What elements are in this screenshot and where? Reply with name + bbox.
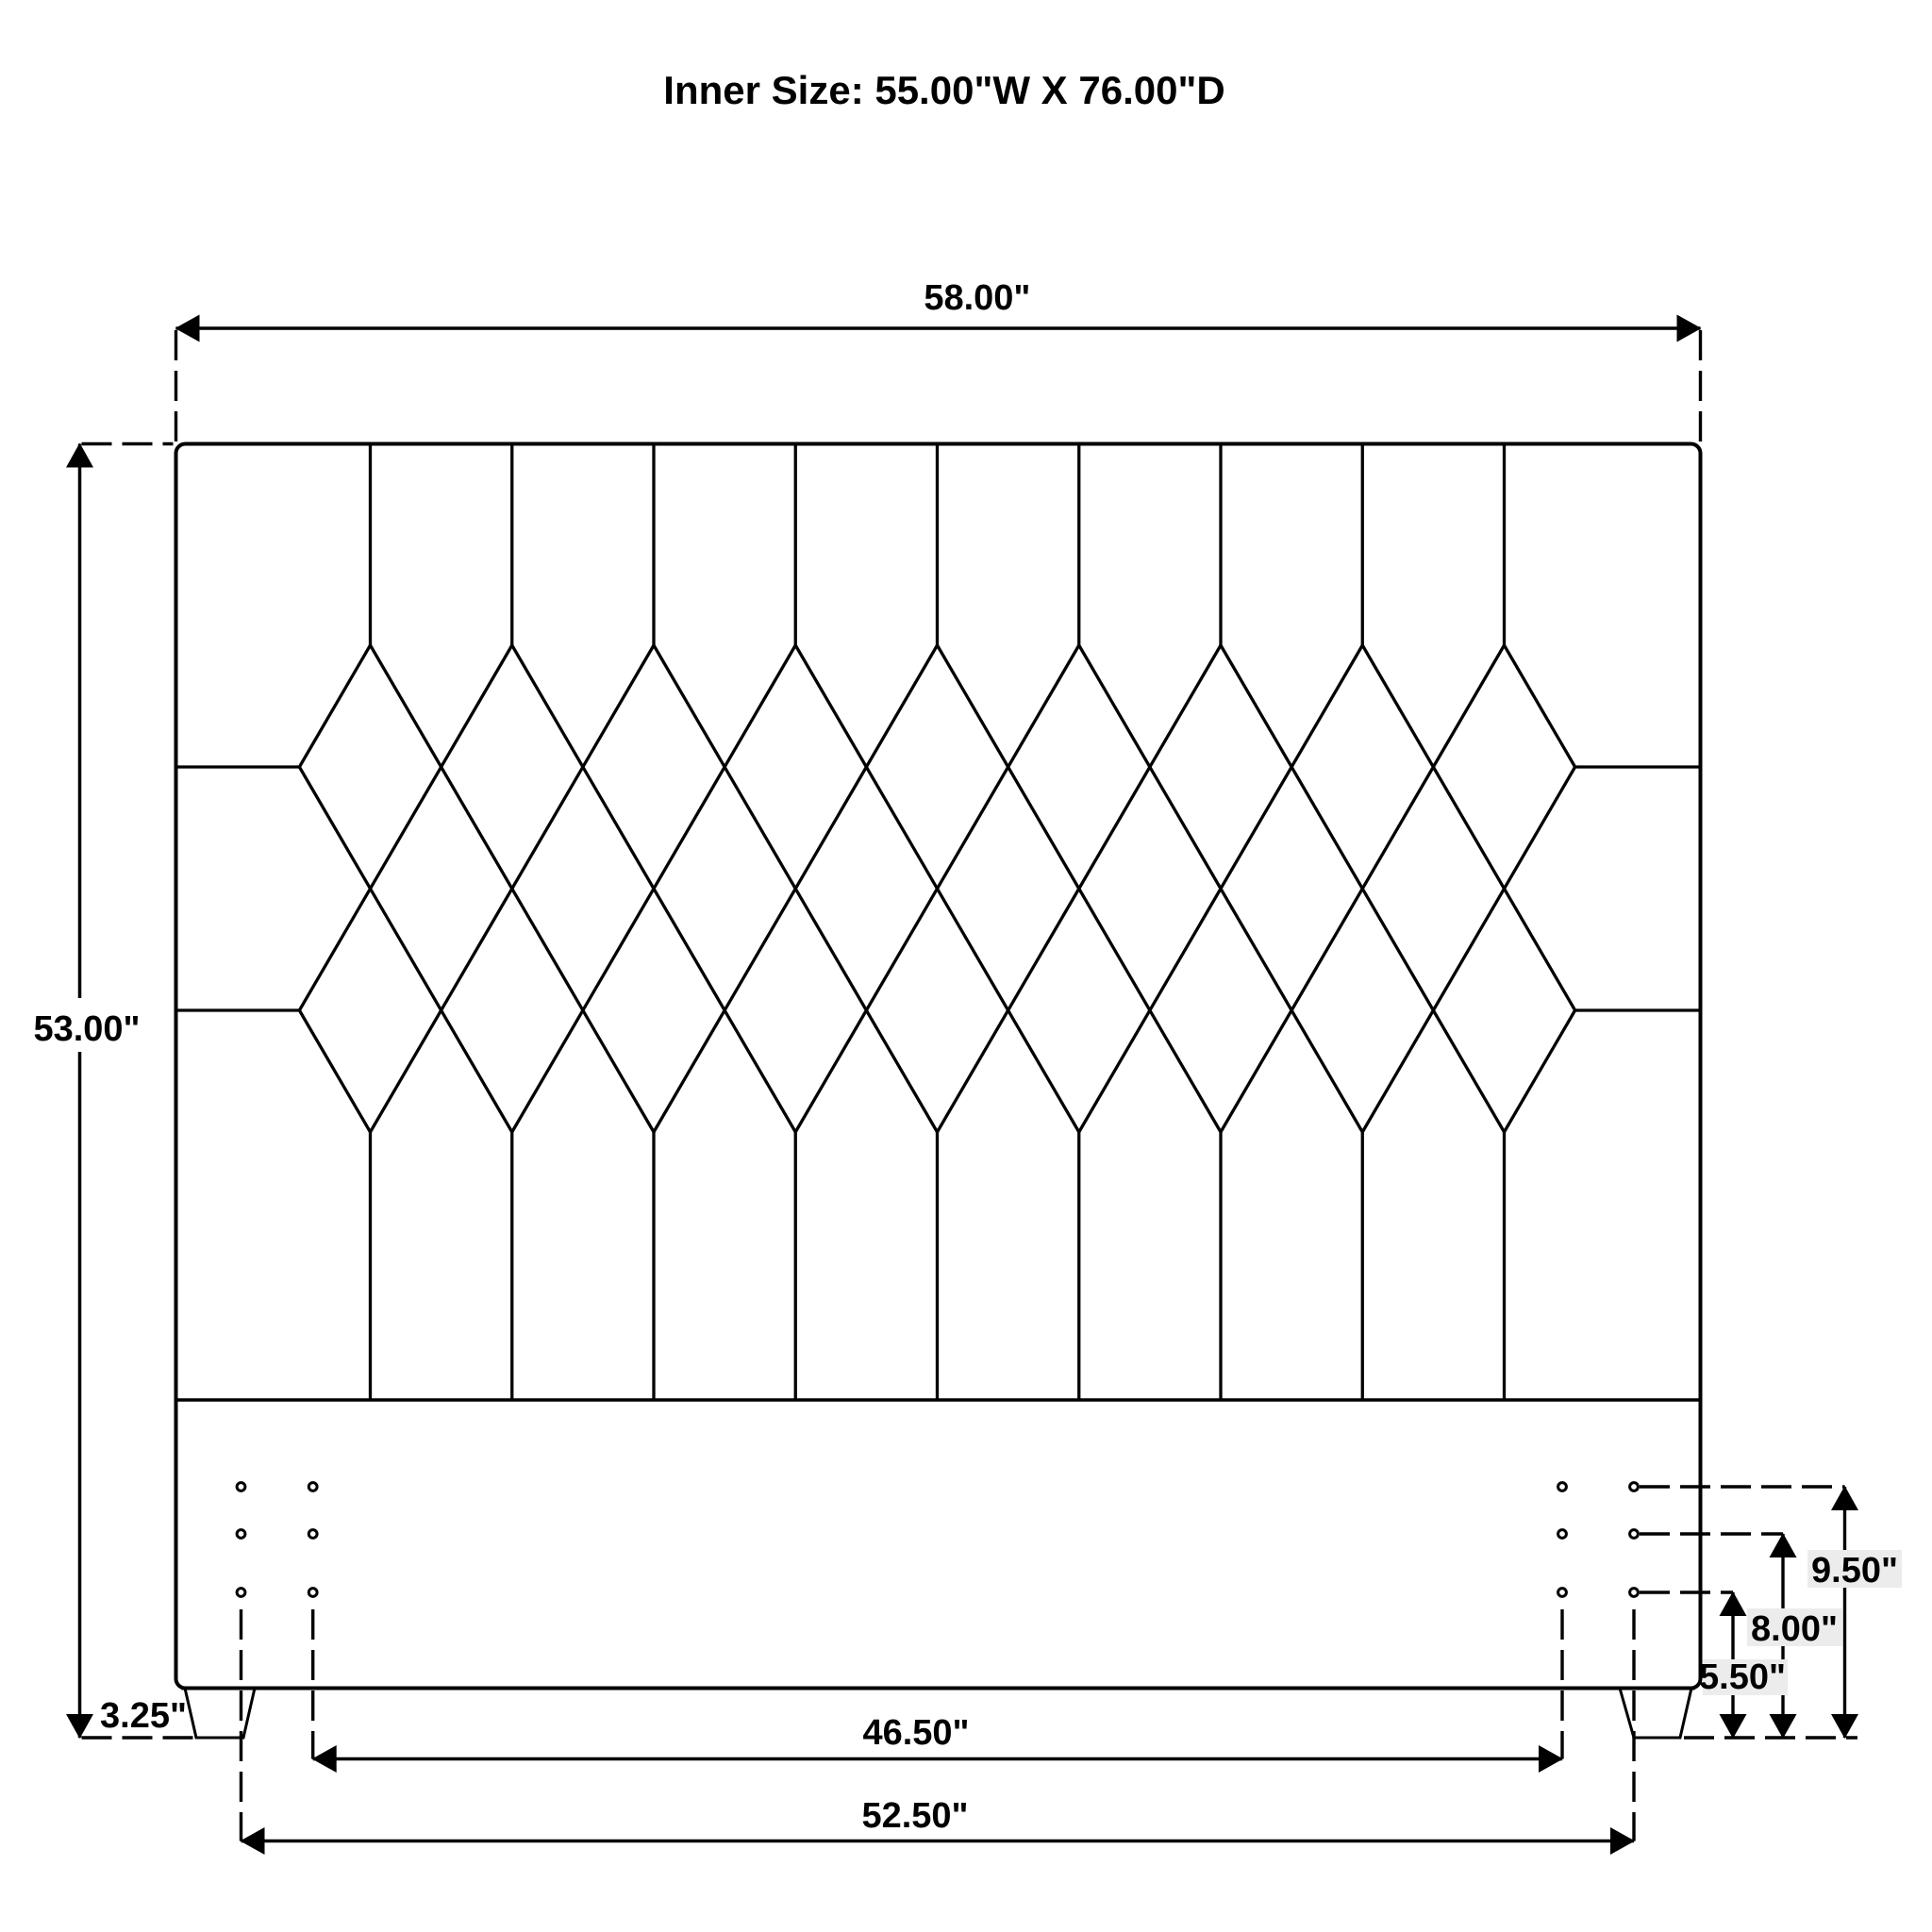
svg-text:9.50": 9.50" [1811, 1551, 1898, 1591]
svg-text:52.50": 52.50" [861, 1796, 968, 1836]
svg-text:58.00": 58.00" [924, 278, 1030, 318]
svg-text:3.25": 3.25" [100, 1696, 187, 1736]
svg-text:Inner Size: 55.00"W X 76.00"D: Inner Size: 55.00"W X 76.00"D [663, 68, 1224, 112]
svg-text:46.50": 46.50" [862, 1713, 969, 1753]
svg-text:8.00": 8.00" [1751, 1609, 1838, 1649]
svg-text:5.50": 5.50" [1699, 1657, 1786, 1697]
svg-text:53.00": 53.00" [33, 1009, 140, 1049]
